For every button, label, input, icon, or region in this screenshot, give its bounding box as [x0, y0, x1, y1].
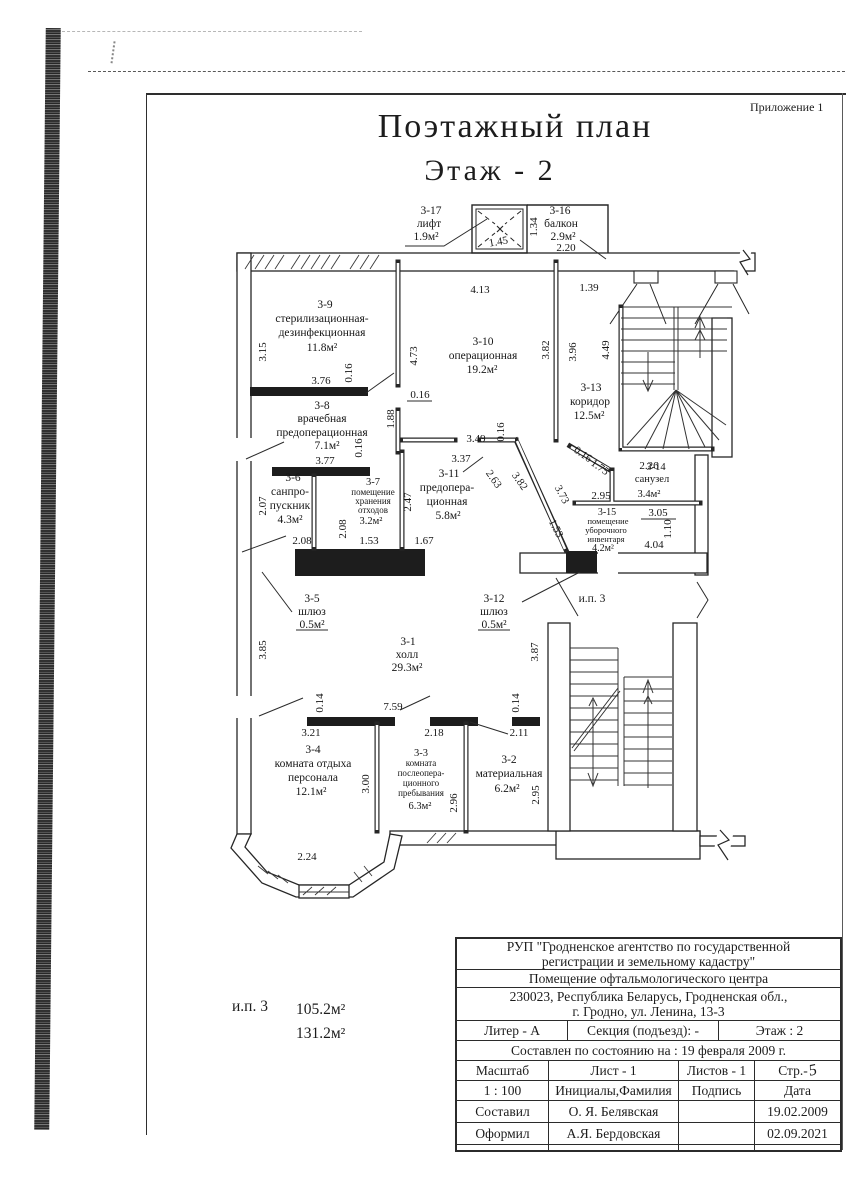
- svg-text:2.08: 2.08: [337, 519, 349, 539]
- legend-block: и.п. 3 105.2м² 131.2м²: [232, 998, 268, 1016]
- name-cell: О. Я. Белявская: [548, 1101, 678, 1122]
- svg-text:6.2м²: 6.2м²: [494, 783, 520, 795]
- floor-cell: Этаж : 2: [718, 1021, 840, 1040]
- name-cell: А.Я. Бердовская: [548, 1123, 678, 1144]
- svg-text:3.2м²: 3.2м²: [360, 516, 383, 527]
- svg-text:3.49: 3.49: [466, 433, 486, 445]
- svg-text:1.53: 1.53: [359, 535, 379, 547]
- svg-text:0.16: 0.16: [343, 363, 355, 383]
- svg-text:3-1: 3-1: [400, 636, 416, 648]
- svg-text:29.3м²: 29.3м²: [392, 662, 423, 674]
- scale-value-cell: 1 : 100: [457, 1081, 548, 1100]
- room-label-3-10: 3-10 операционная 19.2м²: [449, 336, 518, 376]
- svg-text:5.8м²: 5.8м²: [435, 510, 461, 522]
- premises-label: Помещение офтальмологического центра: [529, 971, 768, 987]
- room-label-3-9: 3-9 стерилизационная- дезинфекционная 11…: [275, 299, 368, 354]
- svg-text:2.96: 2.96: [448, 793, 460, 813]
- svg-text:4.2м²: 4.2м²: [592, 543, 614, 554]
- room-label-3-3: 3-3 комната послеопера- ционного пребыва…: [398, 748, 445, 812]
- address-line-1: 230023, Республика Беларусь, Гродненская…: [510, 989, 788, 1004]
- svg-text:1.9м²: 1.9м²: [413, 231, 439, 243]
- room-label-3-13: 3-13 коридор 12.5м²: [570, 382, 610, 422]
- svg-text:0.16: 0.16: [495, 422, 507, 442]
- svg-text:1.67: 1.67: [414, 535, 434, 547]
- role-cell: Оформил: [457, 1123, 548, 1144]
- svg-text:пребывания: пребывания: [398, 788, 444, 798]
- svg-text:3-14: 3-14: [646, 462, 666, 473]
- svg-text:стерилизационная-: стерилизационная-: [275, 313, 368, 325]
- page-label: Стр.-: [778, 1063, 808, 1079]
- pilasters: [610, 271, 749, 324]
- page-cell: Стр.-5: [754, 1061, 840, 1080]
- svg-text:2.18: 2.18: [424, 727, 444, 739]
- svg-text:3-9: 3-9: [317, 299, 333, 311]
- svg-text:3-12: 3-12: [483, 593, 504, 605]
- org-line-1: РУП "Гродненское агентство по государств…: [507, 939, 790, 954]
- svg-text:шлюз: шлюз: [298, 606, 326, 618]
- page-number-handwritten: 5: [807, 1061, 819, 1080]
- svg-text:2.95: 2.95: [530, 785, 542, 805]
- svg-text:комната: комната: [406, 758, 437, 768]
- svg-text:шлюз: шлюз: [480, 606, 508, 618]
- initials-header-cell: Инициалы,Фамилия: [548, 1081, 678, 1100]
- svg-text:врачебная: врачебная: [297, 413, 347, 425]
- svg-text:3.4м²: 3.4м²: [638, 489, 661, 500]
- svg-text:0.16: 0.16: [353, 438, 365, 458]
- svg-text:холл: холл: [396, 649, 419, 661]
- title-block-table: РУП "Гродненское агентство по государств…: [455, 937, 842, 1152]
- svg-text:7.59: 7.59: [383, 701, 403, 713]
- svg-text:3.85: 3.85: [257, 640, 269, 660]
- room-label-3-12: 3-12 шлюз 0.5м²: [480, 593, 508, 631]
- room-label-3-1: 3-1 холл 29.3м²: [392, 636, 423, 674]
- svg-text:0.16: 0.16: [410, 389, 430, 401]
- svg-text:послеопера-: послеопера-: [398, 768, 445, 778]
- svg-text:3.05: 3.05: [648, 507, 668, 519]
- svg-text:1.45: 1.45: [488, 234, 510, 249]
- svg-text:коридор: коридор: [570, 396, 610, 408]
- svg-text:дезинфекционная: дезинфекционная: [279, 327, 367, 339]
- svg-text:0.14: 0.14: [510, 693, 522, 713]
- svg-text:7.1м²: 7.1м²: [314, 440, 340, 452]
- compiled-date-label: Составлен по состоянию на : 19 февраля 2…: [511, 1043, 786, 1059]
- svg-text:3-10: 3-10: [472, 336, 493, 348]
- svg-text:3.73: 3.73: [552, 483, 572, 506]
- table-row-address: 230023, Республика Беларусь, Гродненская…: [457, 987, 840, 1020]
- room-label-3-16: 3-16 балкон 2.9м²: [544, 205, 578, 243]
- table-row-scale-header: Масштаб Лист - 1 Листов - 1 Стр.-5: [457, 1060, 840, 1080]
- svg-text:2.95: 2.95: [591, 490, 611, 502]
- svg-text:0.5м²: 0.5м²: [481, 619, 507, 631]
- lower-staircase: [570, 648, 672, 788]
- svg-text:2.9м²: 2.9м²: [550, 231, 576, 243]
- scale-header-cell: Масштаб: [457, 1061, 548, 1080]
- svg-text:3.82: 3.82: [509, 470, 530, 493]
- name-cell: Т.П.С: [548, 1145, 678, 1152]
- scanned-floor-plan-sheet: Приложение 1 Поэтажный план Этаж - 2: [0, 0, 848, 1200]
- svg-text:3-2: 3-2: [501, 754, 517, 766]
- svg-text:3-5: 3-5: [304, 593, 320, 605]
- table-row-sign-header: 1 : 100 Инициалы,Фамилия Подпись Дата: [457, 1080, 840, 1100]
- svg-text:ционная: ционная: [427, 496, 468, 508]
- svg-text:ционного: ционного: [403, 778, 440, 788]
- svg-text:2.24: 2.24: [297, 851, 317, 863]
- date-cell: 02.09.2021: [754, 1123, 840, 1144]
- svg-text:1.75: 1.75: [588, 457, 611, 478]
- svg-text:11.8м²: 11.8м²: [307, 342, 338, 354]
- ip3-plan-label: и.п. 3: [579, 593, 606, 605]
- section-cell: Секция (подъезд): -: [567, 1021, 718, 1040]
- svg-text:лифт: лифт: [417, 218, 441, 230]
- room-label-3-17: 3-17 лифт 1.9м²: [413, 205, 441, 243]
- svg-text:3-4: 3-4: [305, 744, 321, 756]
- svg-text:3.77: 3.77: [315, 455, 335, 467]
- svg-text:4.73: 4.73: [408, 346, 420, 366]
- room-label-3-7: 3-7 помещение хранения отходов 3.2м²: [351, 477, 394, 527]
- sheets-cell: Листов - 1: [678, 1061, 754, 1080]
- svg-text:0.14: 0.14: [314, 693, 326, 713]
- svg-text:3.37: 3.37: [451, 453, 471, 465]
- svg-text:2.20: 2.20: [556, 242, 576, 254]
- svg-text:предопера-: предопера-: [420, 482, 475, 494]
- org-line-2: регистрации и земельному кадастру": [542, 954, 755, 969]
- svg-text:балкон: балкон: [544, 218, 578, 230]
- signature-cell: [678, 1123, 754, 1144]
- legend-area-1: 105.2м²: [296, 998, 345, 1022]
- svg-text:19.2м²: 19.2м²: [467, 364, 498, 376]
- svg-text:3-11: 3-11: [439, 468, 460, 480]
- room-label-3-11: 3-11 предопера- ционная 5.8м²: [420, 468, 475, 522]
- svg-text:4.3м²: 4.3м²: [277, 514, 303, 526]
- svg-text:1.88: 1.88: [385, 409, 397, 429]
- svg-text:3-16: 3-16: [549, 205, 570, 217]
- svg-text:2.11: 2.11: [510, 727, 529, 739]
- svg-text:3-8: 3-8: [314, 400, 330, 412]
- table-row-liter: Литер - А Секция (подъезд): - Этаж : 2: [457, 1020, 840, 1040]
- signature-header-cell: Подпись: [678, 1081, 754, 1100]
- svg-text:3.96: 3.96: [567, 342, 579, 362]
- table-row-proveril-clipped: Проверил Т.П.С 02.09.2021: [457, 1144, 840, 1152]
- svg-text:3.82: 3.82: [540, 340, 552, 359]
- svg-text:3.87: 3.87: [529, 642, 541, 662]
- svg-text:пускник: пускник: [270, 500, 311, 512]
- svg-text:12.1м²: 12.1м²: [296, 786, 327, 798]
- table-row-oformil: Оформил А.Я. Бердовская 02.09.2021: [457, 1122, 840, 1144]
- svg-text:3.00: 3.00: [360, 774, 372, 794]
- svg-text:1.34: 1.34: [528, 217, 540, 237]
- svg-text:материальная: материальная: [476, 768, 543, 780]
- table-row-organization: РУП "Гродненское агентство по государств…: [457, 939, 840, 969]
- svg-text:санпро-: санпро-: [271, 486, 309, 498]
- svg-text:3-17: 3-17: [420, 205, 441, 217]
- svg-text:персонала: персонала: [288, 772, 338, 784]
- svg-text:4.49: 4.49: [600, 340, 612, 360]
- svg-text:12.5м²: 12.5м²: [574, 410, 605, 422]
- svg-text:3.76: 3.76: [311, 375, 331, 387]
- svg-text:4.13: 4.13: [470, 284, 490, 296]
- liter-cell: Литер - А: [457, 1021, 567, 1040]
- svg-text:3-6: 3-6: [285, 472, 301, 484]
- svg-text:1.39: 1.39: [579, 282, 599, 294]
- legend-label: и.п. 3: [232, 998, 268, 1015]
- svg-text:3-13: 3-13: [580, 382, 601, 394]
- date-header-cell: Дата: [754, 1081, 840, 1100]
- room-label-3-6: 3-6 санпро- пускник 4.3м²: [270, 472, 311, 526]
- svg-text:4.04: 4.04: [644, 539, 664, 551]
- svg-text:операционная: операционная: [449, 350, 518, 362]
- svg-text:отходов: отходов: [358, 505, 388, 515]
- svg-text:2.07: 2.07: [257, 496, 269, 516]
- svg-text:0.5м²: 0.5м²: [299, 619, 325, 631]
- table-row-compiled: Составлен по состоянию на : 19 февраля 2…: [457, 1040, 840, 1060]
- svg-text:6.3м²: 6.3м²: [409, 801, 432, 812]
- table-row-sostavil: Составил О. Я. Белявская 19.02.2009: [457, 1100, 840, 1122]
- signature-cell: [678, 1101, 754, 1122]
- room-label-3-5: 3-5 шлюз 0.5м²: [298, 593, 326, 631]
- svg-text:санузел: санузел: [635, 474, 669, 485]
- svg-text:2.08: 2.08: [292, 535, 312, 547]
- legend-area-2: 131.2м²: [296, 1022, 345, 1046]
- svg-text:1.10: 1.10: [662, 519, 674, 539]
- signature-cell: [678, 1145, 754, 1152]
- svg-text:3.15: 3.15: [257, 342, 269, 362]
- svg-text:комната отдыха: комната отдыха: [275, 758, 352, 770]
- role-cell: Составил: [457, 1101, 548, 1122]
- svg-text:2.47: 2.47: [402, 492, 414, 512]
- address-line-2: г. Гродно, ул. Ленина, 13-3: [572, 1004, 724, 1019]
- svg-text:предоперационная: предоперационная: [276, 427, 368, 439]
- room-label-3-4: 3-4 комната отдыха персонала 12.1м²: [275, 744, 352, 798]
- table-row-premises: Помещение офтальмологического центра: [457, 969, 840, 987]
- room-label-3-15: 3-15 помещение уборочного инвентаря 4.2м…: [585, 507, 629, 554]
- svg-text:2.63: 2.63: [483, 468, 504, 491]
- sheet-cell: Лист - 1: [548, 1061, 678, 1080]
- date-cell: 02.09.2021: [754, 1145, 840, 1152]
- svg-text:3.21: 3.21: [301, 727, 320, 739]
- role-cell: Проверил: [457, 1145, 548, 1152]
- date-cell: 19.02.2009: [754, 1101, 840, 1122]
